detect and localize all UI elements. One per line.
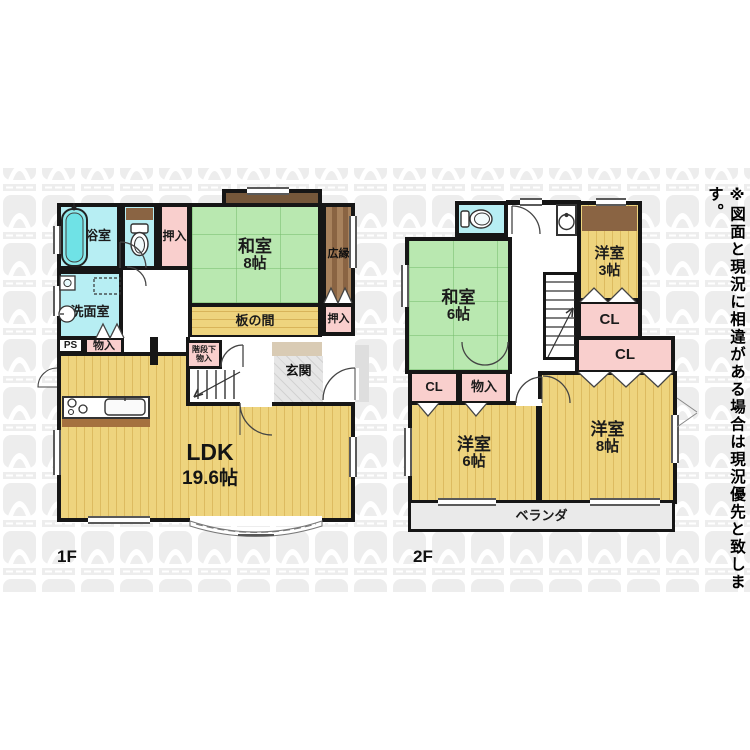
bow-window (190, 521, 322, 537)
stairs-1f-icon (194, 370, 240, 399)
stove-icon (68, 399, 87, 415)
kitchen-sink-icon (105, 397, 145, 415)
floorplan-page: 浴室 押入 和室 8帖 広縁 板の間 押入 洗面室 PS 物入 LDK 19.6… (0, 0, 750, 750)
toilet-2f-icon (461, 210, 492, 228)
washroom-fixtures (59, 276, 120, 322)
door-arcs-2f (417, 206, 697, 427)
plan-symbols (0, 0, 750, 750)
washing-machine-icon (94, 278, 120, 294)
stairs-2f-icon (546, 282, 575, 357)
bathtub-icon (62, 203, 87, 266)
washbasin-icon (559, 213, 574, 229)
